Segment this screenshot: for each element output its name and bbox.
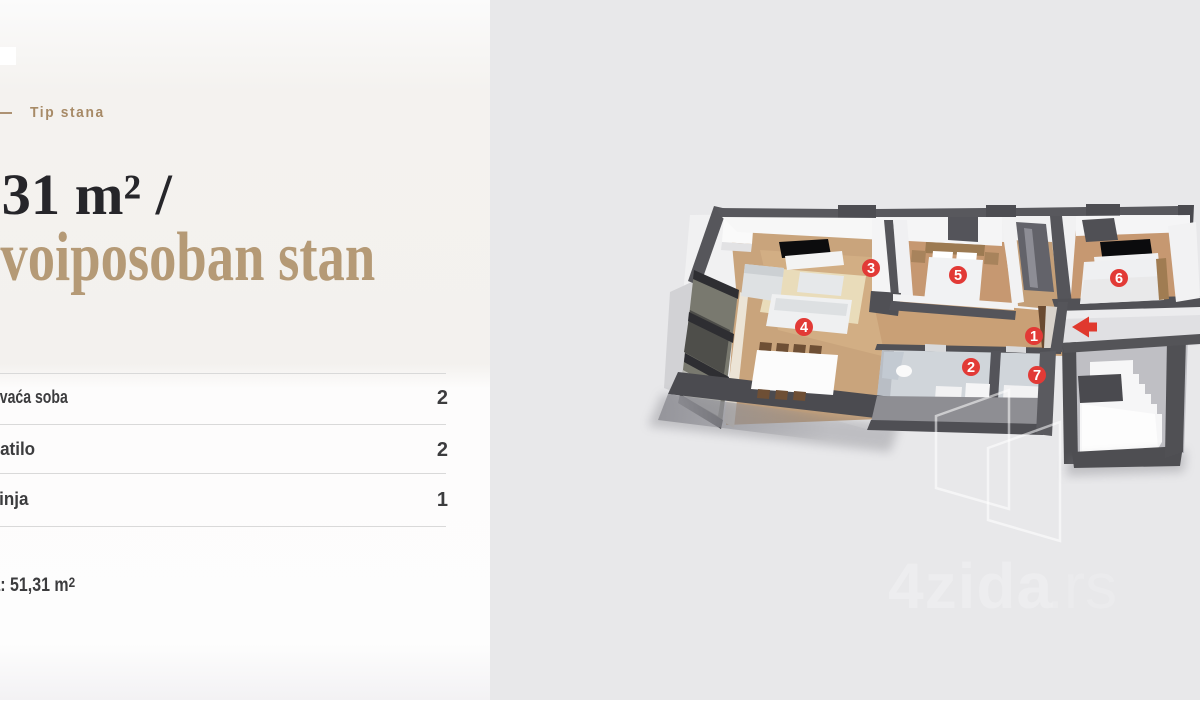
svg-text:4: 4 <box>800 320 808 336</box>
svg-text:2: 2 <box>967 360 975 376</box>
svg-text:6: 6 <box>1115 271 1123 287</box>
svg-text:7: 7 <box>1033 368 1041 384</box>
svg-text:1: 1 <box>1030 329 1038 345</box>
svg-text:4zida: 4zida <box>888 550 1053 622</box>
svg-text:3: 3 <box>867 261 875 277</box>
svg-text:5: 5 <box>954 268 962 284</box>
svg-text:.rs: .rs <box>1046 550 1117 622</box>
